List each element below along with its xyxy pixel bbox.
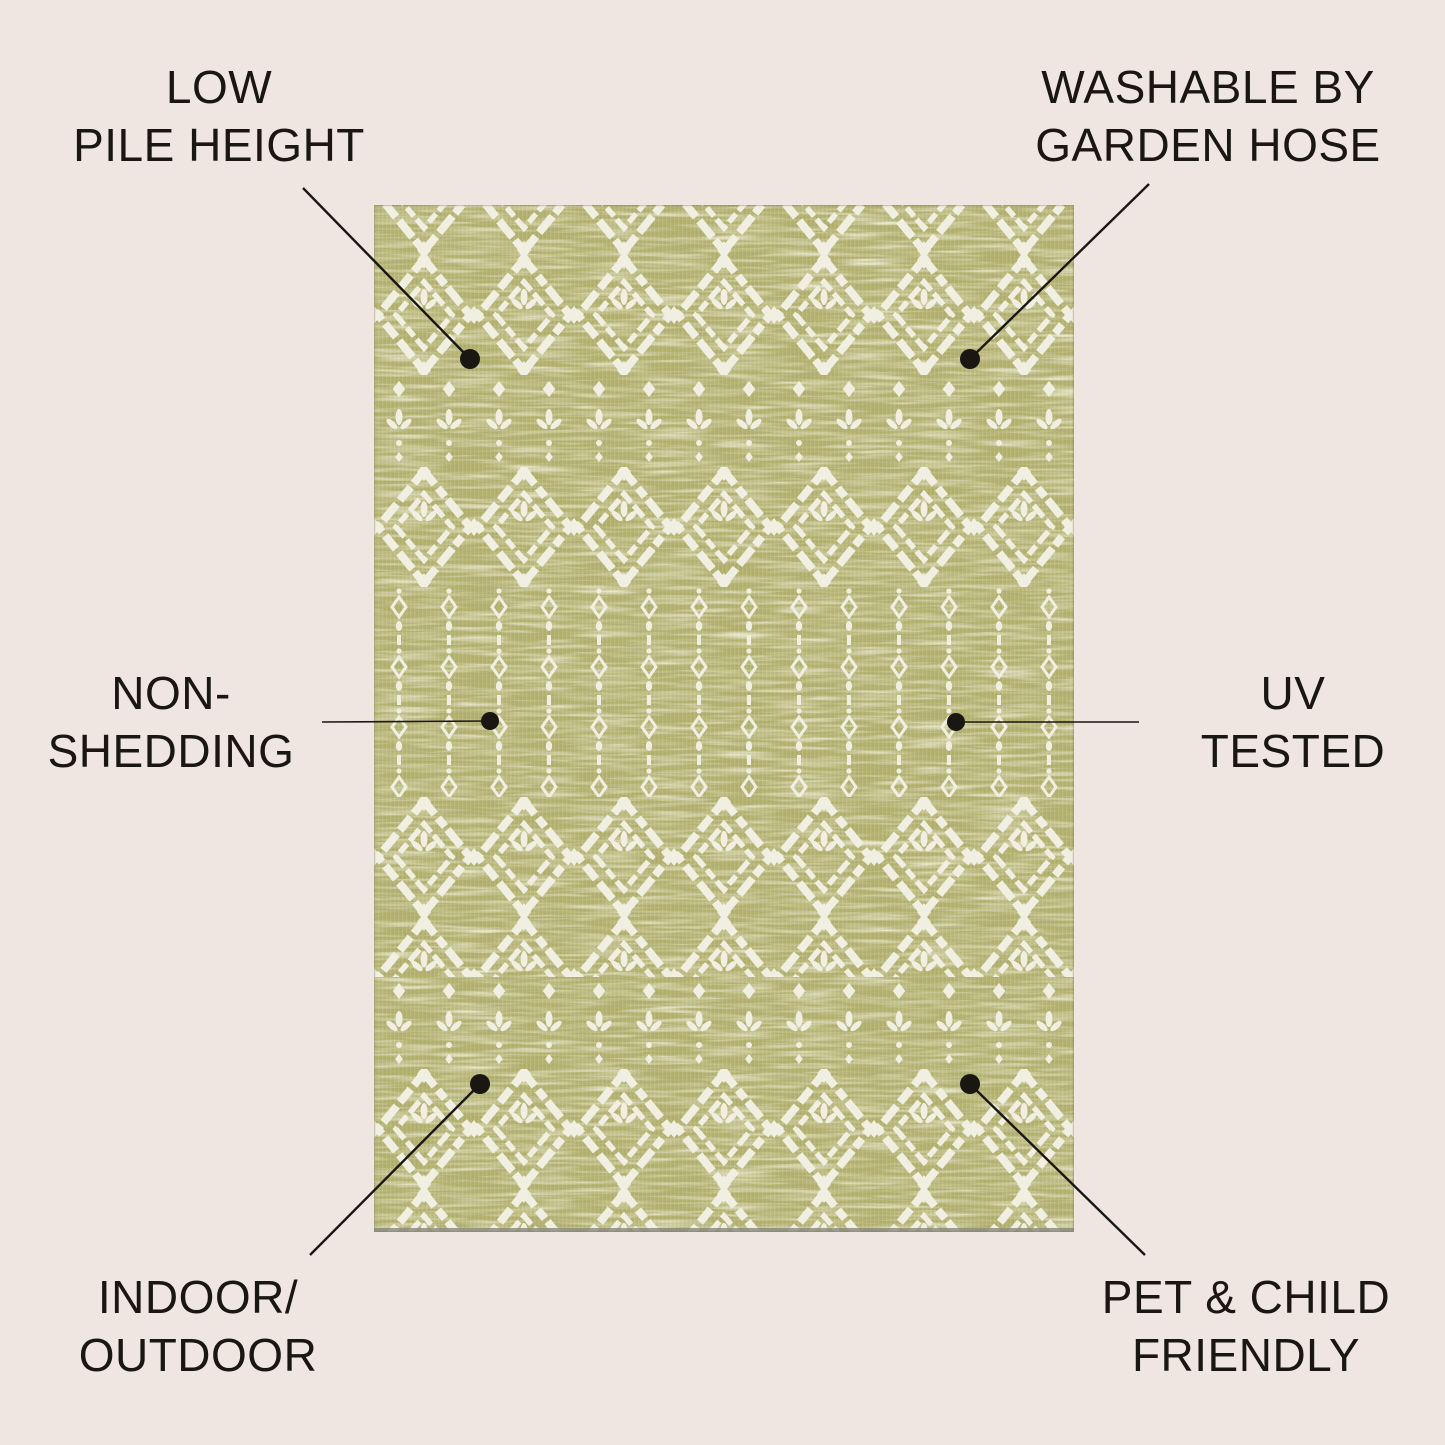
callout-label-pet-child-friendly: PET & CHILD FRIENDLY	[1046, 1268, 1445, 1384]
rug-image	[374, 205, 1074, 1232]
callout-label-uv-tested: UV TESTED	[1093, 664, 1445, 780]
callout-label-non-shedding: NON- SHEDDING	[0, 664, 371, 780]
callout-label-low-pile-height: LOW PILE HEIGHT	[19, 58, 419, 174]
callout-label-washable-garden-hose: WASHABLE BY GARDEN HOSE	[1008, 58, 1408, 174]
infographic-canvas: LOW PILE HEIGHT WASHABLE BY GARDEN HOSE …	[0, 0, 1445, 1445]
callout-label-indoor-outdoor: INDOOR/ OUTDOOR	[0, 1268, 398, 1384]
